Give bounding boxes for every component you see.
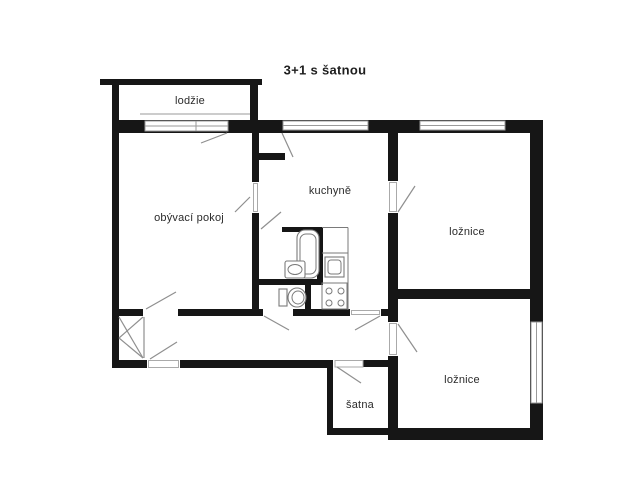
wall-shaft-bottom (259, 153, 285, 160)
built-in-wardrobe (119, 317, 144, 358)
door-gap-living-hallway (143, 309, 178, 316)
swing-balcony-door (201, 133, 227, 143)
bathroom-sink (285, 261, 305, 278)
swing-kitchen-door (355, 316, 380, 330)
door-swings (146, 133, 417, 383)
swing-living-hall-door (146, 292, 176, 309)
door-openings (143, 181, 398, 368)
door-leaf-closet (335, 361, 363, 368)
door-leaf-kitchen-hallway (352, 311, 380, 315)
wall-exterior-bottom (112, 360, 333, 368)
wall-kitchen-bedrooms (388, 120, 398, 440)
room-label-kitchen: kuchyně (309, 185, 351, 197)
wall-closet-bottom (327, 428, 398, 435)
swing-bedroom2-door (398, 324, 417, 352)
room-label-living-room: obývací pokoj (154, 212, 224, 224)
swing-bedroom1-door (398, 186, 415, 212)
wall-bedroom2-bottom (388, 428, 543, 440)
door-leaf-living-kitchen (254, 184, 258, 212)
kitchen-sink (325, 257, 344, 277)
wall-loggia-top (100, 79, 262, 85)
door-leaf-entrance (149, 361, 179, 368)
swing-living-kitchen-door (235, 197, 250, 212)
swing-wc-door (264, 316, 289, 330)
toilet (279, 288, 306, 307)
swing-closet-door (337, 367, 361, 383)
room-label-loggia: lodžie (175, 95, 205, 107)
door-leaf-bedroom2 (390, 324, 397, 355)
room-label-bedroom-1: ložnice (449, 226, 485, 238)
wall-between-bedrooms (388, 289, 533, 299)
wall-closet-left (327, 360, 333, 435)
swing-entrance-door (150, 342, 177, 359)
room-label-bedroom-2: ložnice (444, 374, 480, 386)
wall-bathroom-wc-divider (259, 279, 323, 285)
door-leaf-bedroom1 (390, 183, 397, 212)
wall-living-kitchen (252, 133, 259, 316)
swing-bathroom-door (261, 212, 281, 229)
plan-title: 3+1 s šatnou (284, 63, 367, 78)
fixtures (119, 228, 348, 359)
door-gap-wc (263, 309, 293, 316)
wall-exterior-left (112, 120, 119, 368)
stove (322, 283, 347, 309)
room-label-closet: šatna (346, 399, 374, 411)
wall-closet-top-segment (363, 360, 388, 367)
floor-plan: 3+1 s šatnou lodžie obývací pokoj kuchyn… (0, 0, 636, 480)
